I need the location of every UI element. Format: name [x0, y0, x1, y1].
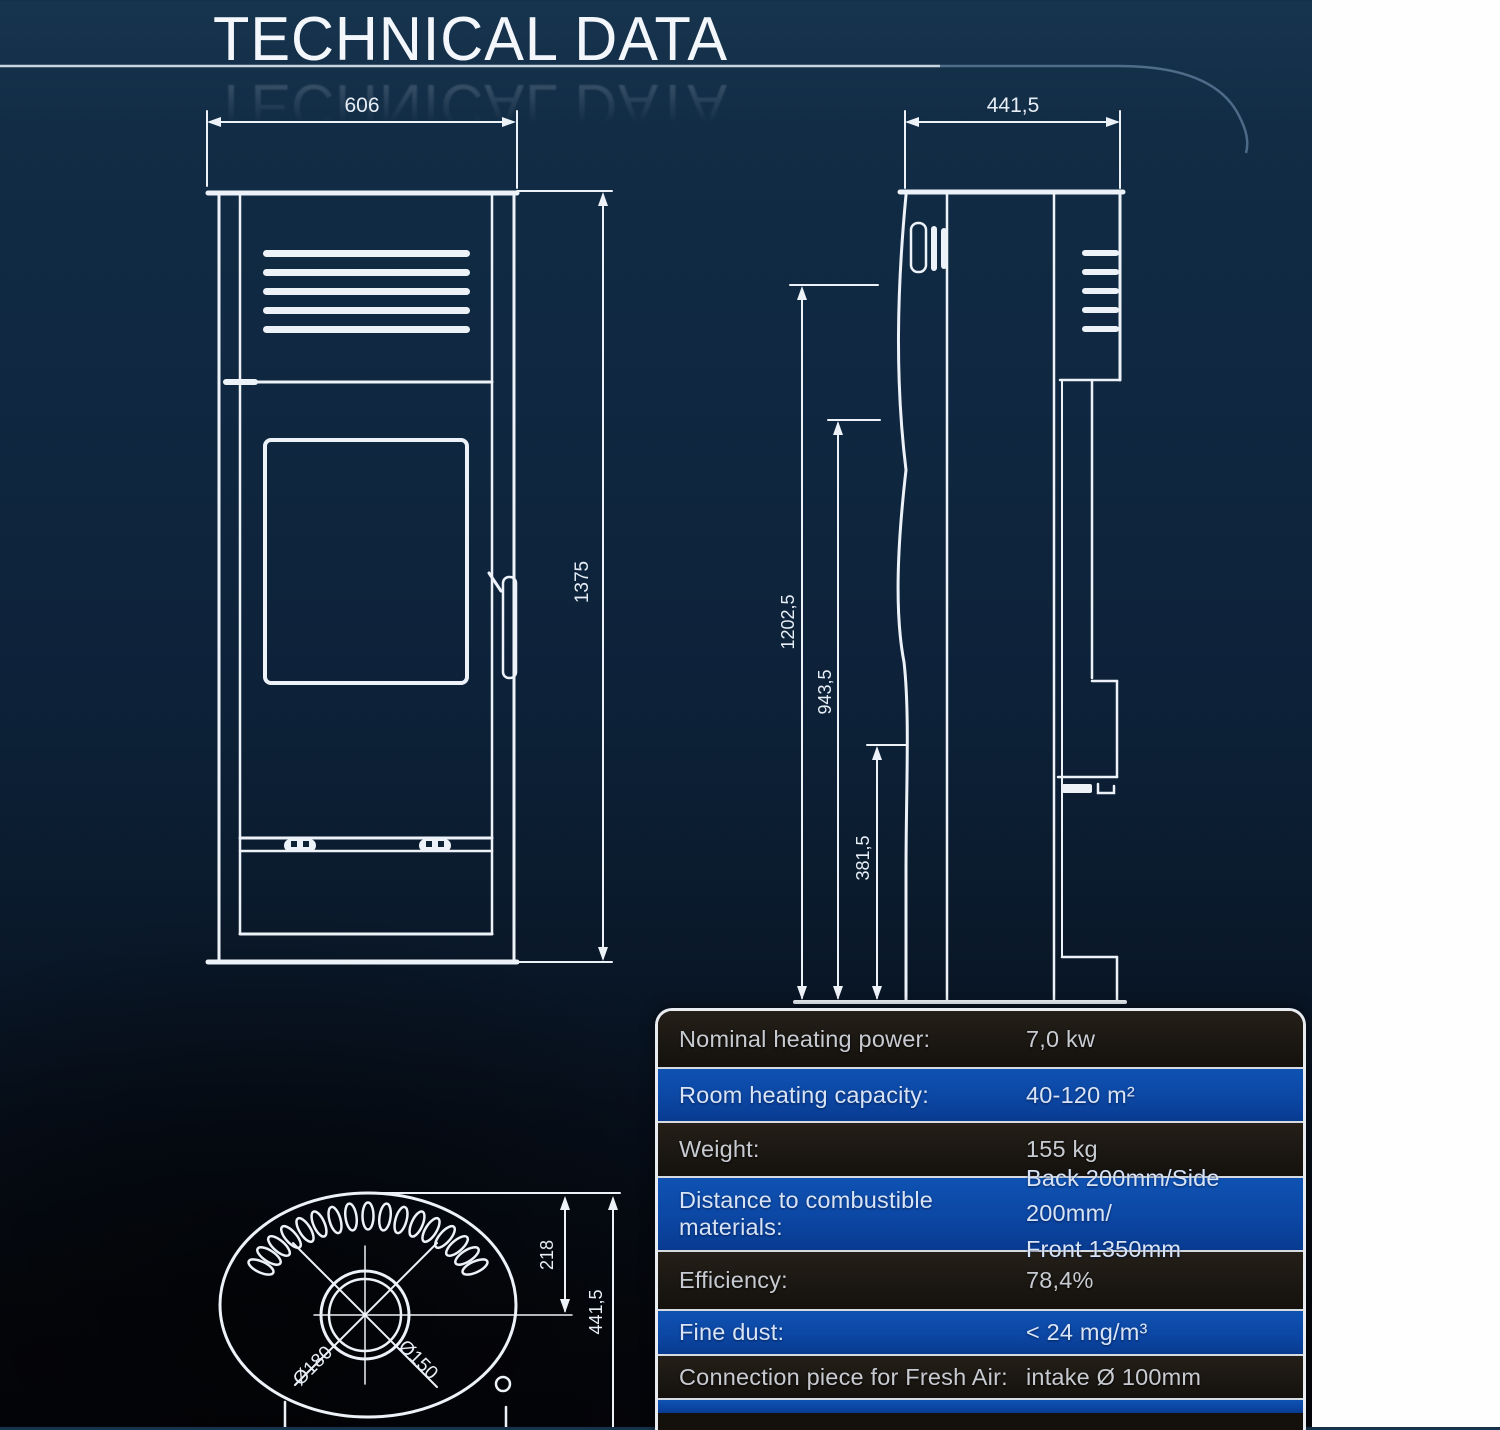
top-view-drawing: Ø180 Ø150 218 441,5	[220, 1193, 620, 1427]
table-row: Distance to combustible materials: Back …	[658, 1176, 1303, 1250]
page-margin-strip	[1312, 0, 1500, 1427]
spec-label: Connection piece for Fresh Air:	[658, 1364, 1026, 1391]
spec-value-line-2: Front 1350mm	[1026, 1232, 1303, 1267]
table-row: Nominal heating power: 7,0 kw	[658, 1011, 1303, 1067]
flue-inner-diameter-label: Ø150	[394, 1336, 442, 1384]
spec-label: Nominal heating power:	[658, 1026, 1026, 1053]
spec-label: Weight:	[658, 1136, 1026, 1163]
spec-table: Nominal heating power: 7,0 kw Room heati…	[655, 1008, 1306, 1430]
spec-value: 155 kg	[1026, 1136, 1098, 1163]
spec-value: Back 200mm/Side 200mm/ Front 1350mm	[1026, 1161, 1303, 1267]
table-row: Connection piece for Fresh Air: intake Ø…	[658, 1354, 1303, 1398]
topview-flue-offset-dim-label: 218	[537, 1240, 557, 1270]
front-height-dim-label: 1375	[572, 561, 593, 603]
side-view-drawing: 441,5	[778, 94, 1125, 1002]
table-row-cutoff	[658, 1398, 1303, 1413]
page-title-reflection: TECHNICAL DATA	[213, 70, 728, 141]
spec-label: Fine dust:	[658, 1319, 1026, 1346]
spec-value: 78,4%	[1026, 1267, 1094, 1294]
spec-label: Distance to combustible materials:	[658, 1187, 1026, 1241]
side-height-total-dim-label: 1202,5	[778, 594, 798, 649]
side-height-low-dim-label: 381,5	[853, 835, 873, 880]
spec-label: Room heating capacity:	[658, 1082, 1026, 1109]
spec-label: Efficiency:	[658, 1267, 1026, 1294]
spec-value: 7,0 kw	[1026, 1026, 1095, 1053]
spec-value: intake Ø 100mm	[1026, 1364, 1201, 1391]
topview-depth-dim-label: 441,5	[586, 1289, 606, 1334]
header: TECHNICAL DATA TECHNICAL DATA	[0, 0, 1312, 180]
technical-data-sheet: { "header": { "title": "TECHNICAL DATA" …	[0, 0, 1500, 1427]
side-height-mid-dim-label: 943,5	[815, 669, 835, 714]
spec-value: 40-120 m²	[1026, 1082, 1135, 1109]
spec-value-line-1: Back 200mm/Side 200mm/	[1026, 1161, 1303, 1232]
table-row: Room heating capacity: 40-120 m²	[658, 1067, 1303, 1121]
page-title: TECHNICAL DATA	[213, 4, 728, 75]
front-view-drawing: 606	[207, 94, 612, 962]
spec-value: < 24 mg/m³	[1026, 1319, 1148, 1346]
table-row: Fine dust: < 24 mg/m³	[658, 1309, 1303, 1354]
